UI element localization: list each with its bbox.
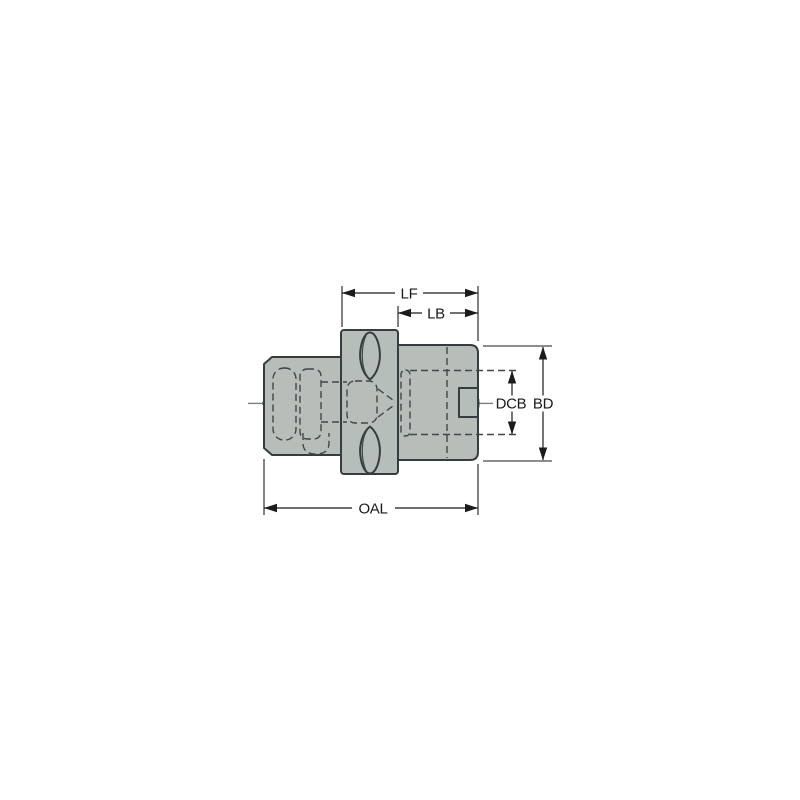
oal-arrow-left [264, 504, 277, 512]
dcb-arrow-down [508, 422, 516, 435]
lb-label: LB [427, 306, 445, 323]
tool-holder-engineering-drawing: LF LB DCB [0, 0, 800, 800]
bd-arrow-down [539, 448, 547, 461]
bd-arrow-up [539, 347, 547, 360]
lf-label: LF [401, 286, 418, 303]
lb-arrow-left [398, 309, 411, 317]
drawing-page: LF LB DCB [0, 0, 800, 800]
left-coupling-section [264, 357, 341, 455]
dimension-dcb: DCB [493, 371, 530, 435]
dcb-arrow-up [508, 371, 516, 384]
lf-arrow-right [465, 289, 478, 297]
body-group [264, 330, 478, 474]
end-face-notch [459, 388, 478, 417]
dcb-label: DCB [496, 396, 527, 413]
dimension-lb: LB [398, 305, 478, 327]
lb-arrow-right [465, 309, 478, 317]
oal-label: OAL [358, 501, 387, 518]
lf-arrow-left [342, 289, 355, 297]
oal-arrow-right [465, 504, 478, 512]
bd-label: BD [533, 396, 554, 413]
